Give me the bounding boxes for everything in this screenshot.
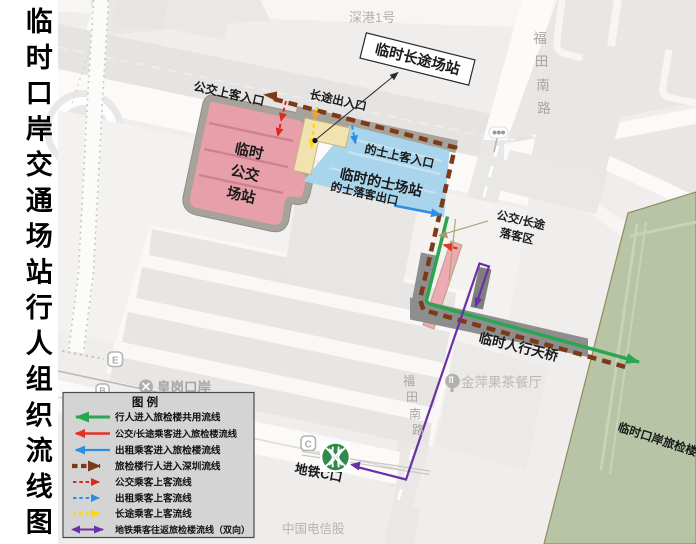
svg-text:时: 时 xyxy=(26,43,53,73)
svg-text:站: 站 xyxy=(26,257,53,287)
svg-text:福: 福 xyxy=(403,373,415,388)
svg-text:图 例: 图 例 xyxy=(132,395,158,409)
svg-text:通: 通 xyxy=(26,186,53,216)
svg-text:E: E xyxy=(112,356,119,367)
svg-text:临: 临 xyxy=(26,6,53,37)
svg-text:行人进入旅检楼共用流线: 行人进入旅检楼共用流线 xyxy=(114,412,221,424)
svg-text:中国电信股: 中国电信股 xyxy=(282,521,345,536)
svg-text:线: 线 xyxy=(26,472,53,502)
svg-text:田: 田 xyxy=(406,390,418,404)
svg-text:出租乘客进入旅检楼流线: 出租乘客进入旅检楼流线 xyxy=(115,445,221,457)
svg-text:人: 人 xyxy=(26,329,53,359)
svg-text:南: 南 xyxy=(409,406,421,421)
svg-text:路: 路 xyxy=(412,422,424,437)
svg-text:组: 组 xyxy=(26,364,53,395)
svg-text:织: 织 xyxy=(26,401,53,431)
svg-text:南: 南 xyxy=(536,78,550,93)
svg-text:福: 福 xyxy=(533,31,547,46)
svg-text:金萍果茶餐厅: 金萍果茶餐厅 xyxy=(461,375,542,390)
svg-text:岸: 岸 xyxy=(26,114,53,144)
svg-text:口: 口 xyxy=(26,79,53,109)
svg-text:深港1号: 深港1号 xyxy=(349,10,395,25)
svg-text:路: 路 xyxy=(537,101,551,116)
svg-text:田: 田 xyxy=(535,54,549,69)
svg-text:行: 行 xyxy=(25,292,53,323)
svg-text:旅检楼行人进入深圳流线: 旅检楼行人进入深圳流线 xyxy=(115,461,221,473)
svg-text:公交/长途乘客进入旅检楼流线: 公交/长途乘客进入旅检楼流线 xyxy=(115,428,238,439)
svg-text:场: 场 xyxy=(26,222,53,252)
svg-text:C: C xyxy=(305,440,312,451)
svg-text:流: 流 xyxy=(26,436,53,466)
svg-text:图: 图 xyxy=(26,508,53,538)
svg-text:长途乘客上客流线: 长途乘客上客流线 xyxy=(115,508,192,520)
svg-text:地铁乘客往返旅检楼流线（双向）: 地铁乘客往返旅检楼流线（双向） xyxy=(115,524,250,535)
svg-text:公交乘客上客流线: 公交乘客上客流线 xyxy=(115,477,192,489)
svg-text:交: 交 xyxy=(26,149,53,180)
svg-text:出租乘客上客流线: 出租乘客上客流线 xyxy=(115,493,192,505)
